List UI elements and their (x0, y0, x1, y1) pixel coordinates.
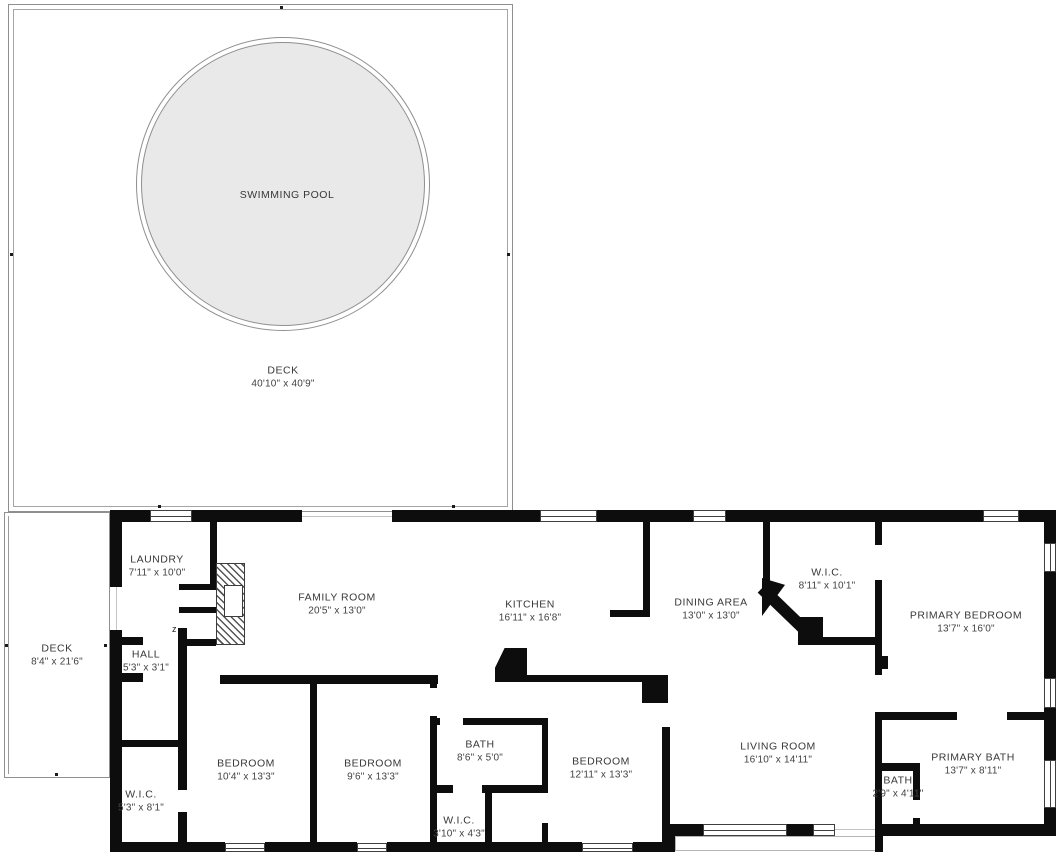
room-label-family-room: FAMILY ROOM20'5" x 13'0" (298, 592, 375, 617)
wall-segment (430, 718, 440, 725)
wall-segment (503, 675, 668, 682)
wall-segment (542, 823, 548, 852)
wall-segment (1044, 572, 1056, 678)
room-dimensions: 5'3" x 8'1" (118, 803, 164, 814)
wall-segment (110, 842, 225, 852)
room-dimensions: 8'4" x 21'6" (31, 657, 83, 668)
window-marker (540, 510, 597, 522)
deck-tick (452, 505, 455, 508)
wall-segment (1044, 510, 1056, 543)
room-name: LAUNDRY (129, 554, 186, 566)
room-name: W.I.C. (118, 789, 164, 801)
wall-segment (662, 727, 670, 824)
room-label-living-room: LIVING ROOM16'10" x 14'11" (740, 741, 816, 766)
deck-tick (10, 253, 13, 256)
room-dimensions: 7'11" x 10'0" (129, 568, 186, 579)
wall-segment (179, 607, 216, 613)
deck-tick (158, 505, 161, 508)
room-label-dining-area: DINING AREA13'0" x 13'0" (674, 597, 747, 622)
room-name: W.I.C. (433, 815, 485, 827)
room-dimensions: 13'0" x 13'0" (674, 611, 747, 622)
room-name: LIVING ROOM (740, 741, 816, 753)
room-name: KITCHEN (499, 599, 561, 611)
window-marker (225, 843, 265, 852)
wall-segment (610, 610, 650, 617)
room-dimensions: 20'5" x 13'0" (298, 606, 375, 617)
deck-tick (55, 773, 58, 776)
window-marker (813, 824, 835, 836)
room-name: BEDROOM (217, 758, 275, 770)
room-label-kitchen: KITCHEN16'11" x 16'8" (499, 599, 561, 624)
wall-segment (220, 675, 438, 684)
room-name: HALL (123, 649, 169, 661)
room-name: DINING AREA (674, 597, 747, 609)
wall-segment (192, 510, 302, 522)
patio-opening (835, 829, 877, 830)
wall-segment (787, 824, 813, 836)
window-marker (693, 510, 726, 522)
room-label-wic-left: W.I.C.5'3" x 8'1" (118, 789, 164, 814)
patio-opening (302, 516, 392, 517)
wall-segment (875, 510, 882, 545)
window-marker (582, 843, 633, 852)
room-name: BEDROOM (344, 758, 402, 770)
closet-block (642, 682, 668, 703)
wall-segment (877, 824, 1056, 836)
room-label-bedroom-3: BEDROOM12'11" x 13'3" (570, 756, 632, 781)
wall-segment (110, 510, 122, 587)
window-marker (1044, 678, 1056, 708)
room-dimensions: 12'11" x 13'3" (570, 770, 632, 781)
wall-segment (178, 628, 187, 790)
room-dimensions: 16'11" x 16'8" (499, 613, 561, 624)
room-label-side-deck: DECK8'4" x 21'6" (31, 643, 83, 668)
wall-segment (112, 673, 143, 682)
wall-segment (310, 682, 317, 842)
wall-segment (1007, 712, 1056, 720)
wall-segment (112, 637, 143, 645)
swimming-pool-circle (141, 42, 425, 326)
wall-segment (763, 522, 770, 582)
wall-segment (110, 740, 180, 747)
floorplan-canvas: z SWIMMING POOLDECK40'10" x 40'9"LAUNDRY… (0, 0, 1056, 852)
window-marker (357, 843, 387, 852)
room-dimensions: 13'7" x 8'11" (931, 766, 1015, 777)
wall-segment (875, 580, 882, 675)
kitchen-counter (495, 648, 527, 682)
window-marker (1044, 760, 1056, 808)
room-name: PRIMARY BEDROOM (910, 610, 1022, 622)
wall-segment (430, 785, 453, 793)
room-dimensions: 3'10" x 4'3" (433, 829, 485, 840)
room-label-hall: HALL5'3" x 3'1" (123, 649, 169, 674)
room-name: BEDROOM (570, 756, 632, 768)
room-label-laundry: LAUNDRY7'11" x 10'0" (129, 554, 186, 579)
window-marker (150, 510, 192, 522)
room-label-bedroom-2: BEDROOM9'6" x 13'3" (344, 758, 402, 783)
room-name: DECK (31, 643, 83, 655)
wall-segment (265, 842, 357, 852)
wall-segment (178, 812, 187, 852)
room-name: PRIMARY BATH (931, 752, 1015, 764)
wall-segment (643, 522, 650, 613)
deck-tick (104, 644, 107, 647)
room-dimensions: 5'3" x 3'1" (123, 663, 169, 674)
room-label-wic-small: W.I.C.3'10" x 4'3" (433, 815, 485, 840)
room-dimensions: 13'7" x 16'0" (910, 624, 1022, 635)
room-name: BATH (873, 775, 924, 787)
deck-tick (280, 6, 283, 9)
room-name: SWIMMING POOL (240, 189, 335, 201)
room-dimensions: 8'11" x 10'1" (799, 581, 856, 592)
room-label-primary-bedroom: PRIMARY BEDROOM13'7" x 16'0" (910, 610, 1022, 635)
room-label-hall-bath: BATH8'6" x 5'0" (457, 739, 503, 764)
wall-segment (542, 718, 548, 793)
room-name: DECK (251, 365, 314, 377)
deck-door-opening (116, 587, 117, 630)
deck-tick (507, 253, 510, 256)
room-dimensions: 9'6" x 13'3" (344, 772, 402, 783)
wall-segment (597, 510, 693, 522)
room-label-swimming-pool: SWIMMING POOL (240, 189, 335, 201)
room-dimensions: 2'9" x 4'11" (873, 789, 924, 800)
wall-segment (633, 842, 675, 852)
side-deck-inner-line (8, 516, 9, 774)
window-marker (983, 510, 1019, 522)
deck-tick (5, 644, 8, 647)
rear-step (675, 836, 877, 851)
wall-segment (913, 818, 920, 830)
room-label-wic-primary: W.I.C.8'11" x 10'1" (799, 567, 856, 592)
door-marker: z (172, 624, 177, 634)
wall-segment (726, 510, 983, 522)
wall-segment (430, 675, 437, 688)
room-dimensions: 10'4" x 13'3" (217, 772, 275, 783)
wall-segment (485, 790, 492, 852)
wall-segment (392, 510, 540, 522)
room-label-primary-bath: PRIMARY BATH13'7" x 8'11" (931, 752, 1015, 777)
window-marker (703, 824, 787, 836)
room-name: BATH (457, 739, 503, 751)
wall-segment (179, 584, 216, 590)
room-dimensions: 40'10" x 40'9" (251, 379, 314, 390)
wall-segment (463, 718, 548, 725)
room-label-pool-deck: DECK40'10" x 40'9" (251, 365, 314, 390)
wall-segment (818, 637, 875, 645)
room-label-small-bath: BATH2'9" x 4'11" (873, 775, 924, 800)
room-label-bedroom-1: BEDROOM10'4" x 13'3" (217, 758, 275, 783)
fireplace-firebox (224, 585, 243, 617)
room-dimensions: 16'10" x 14'11" (740, 755, 816, 766)
window-marker (1044, 543, 1056, 572)
wall-segment (875, 712, 957, 720)
room-name: W.I.C. (799, 567, 856, 579)
room-dimensions: 8'6" x 5'0" (457, 753, 503, 764)
wall-segment (662, 824, 703, 836)
room-name: FAMILY ROOM (298, 592, 375, 604)
